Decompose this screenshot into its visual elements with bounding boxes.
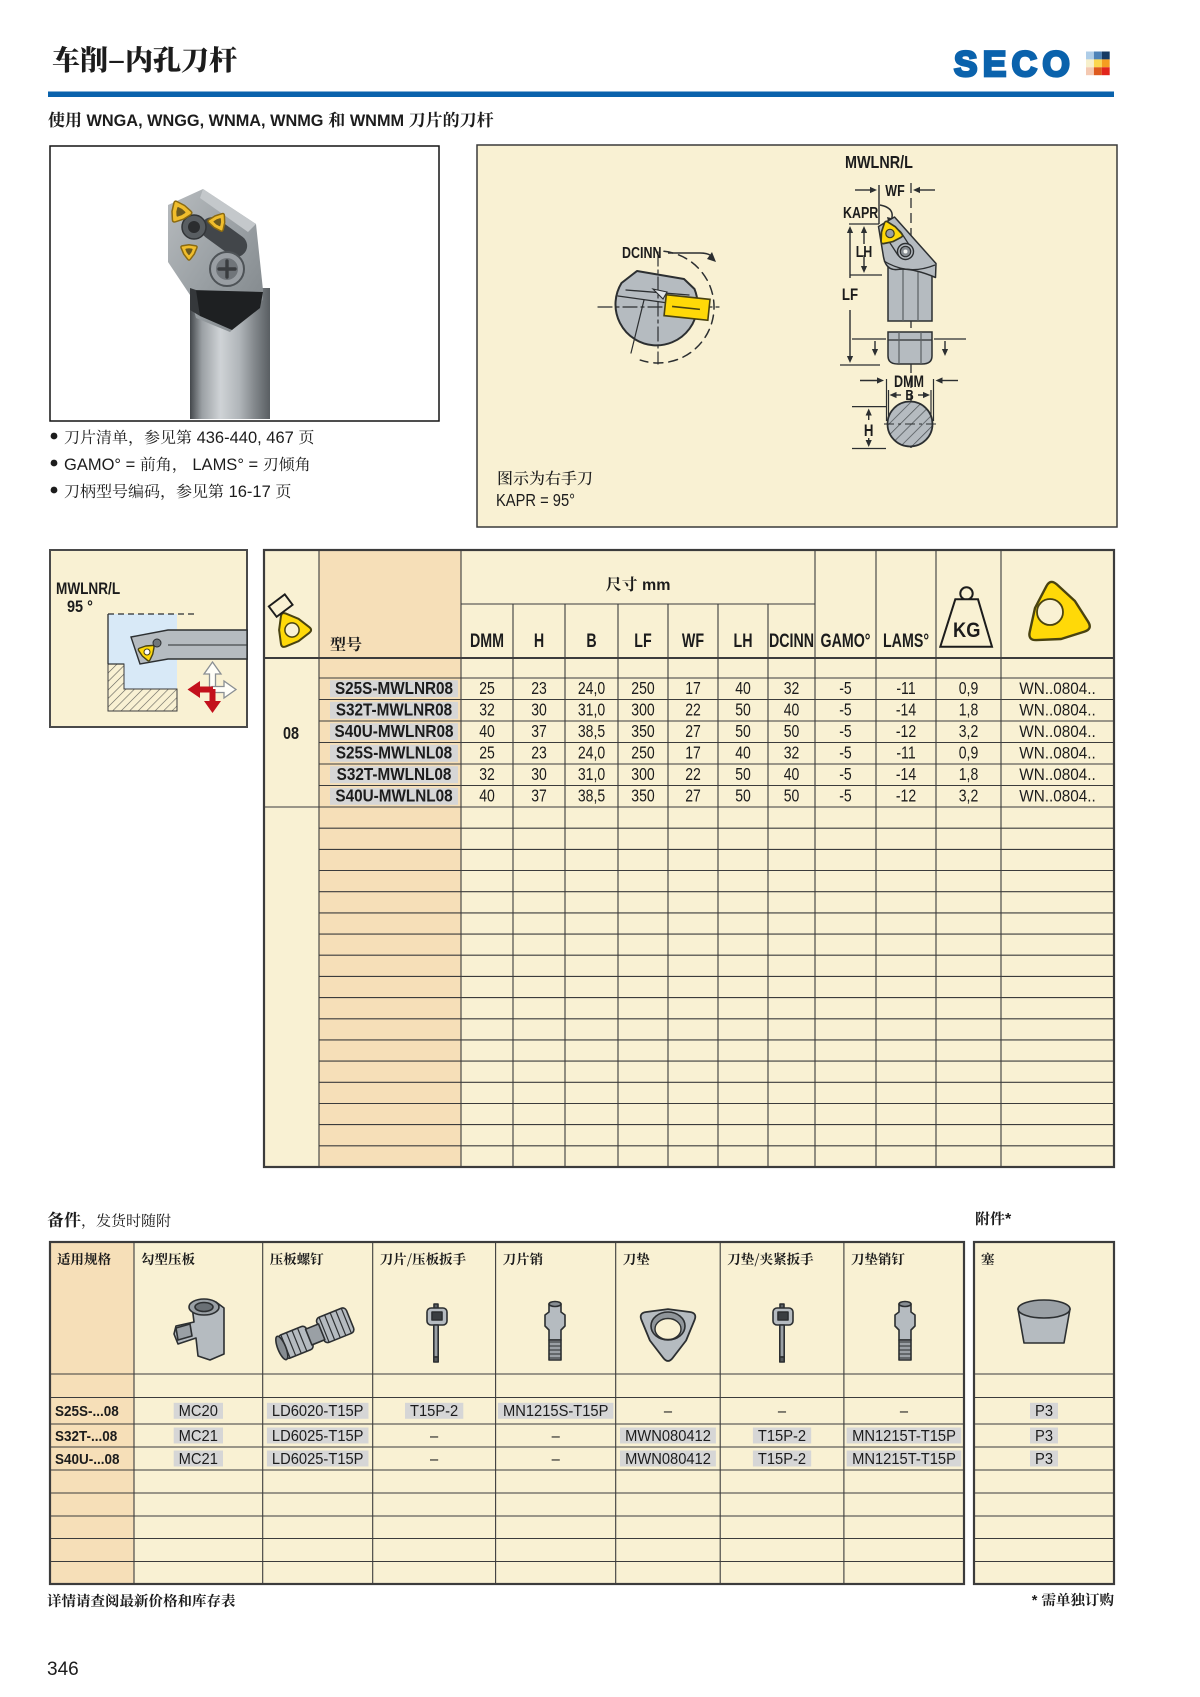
svg-text:-5: -5: [839, 721, 851, 741]
svg-text:KAPR = 95°: KAPR = 95°: [496, 491, 575, 510]
svg-text:300: 300: [631, 764, 654, 784]
svg-text:-5: -5: [839, 678, 851, 698]
svg-text:LD6020-T15P: LD6020-T15P: [272, 1403, 364, 1421]
svg-text:436-440, 467: 436-440, 467: [192, 429, 298, 447]
svg-text:350: 350: [631, 786, 654, 806]
svg-text:WF: WF: [885, 183, 905, 201]
svg-text:24,0: 24,0: [578, 678, 605, 698]
svg-text:S40U-MWLNL08: S40U-MWLNL08: [335, 785, 452, 805]
svg-text:*: *: [1032, 1593, 1042, 1609]
svg-text:95 °: 95 °: [67, 598, 93, 616]
svg-text:-14: -14: [896, 700, 916, 720]
svg-text:31,0: 31,0: [578, 764, 605, 784]
svg-text:S32T-...08: S32T-...08: [55, 1428, 117, 1445]
svg-text:346: 346: [47, 1659, 79, 1680]
svg-text:50: 50: [735, 721, 751, 741]
svg-text:MWN080412: MWN080412: [625, 1450, 711, 1468]
svg-text:17: 17: [685, 743, 701, 763]
svg-text:40: 40: [735, 678, 751, 698]
svg-text:-11: -11: [896, 678, 915, 698]
svg-text:1,8: 1,8: [959, 764, 979, 784]
svg-text:38,5: 38,5: [578, 721, 605, 741]
svg-text:B: B: [586, 630, 596, 651]
svg-text:350: 350: [631, 721, 654, 741]
svg-text:40: 40: [735, 743, 751, 763]
svg-text:KG: KG: [953, 619, 980, 642]
svg-text:WN..0804..: WN..0804..: [1019, 744, 1095, 763]
svg-text:30: 30: [531, 700, 547, 720]
svg-text:WNGA, WNGG, WNMA, WNMG: WNGA, WNGG, WNMA, WNMG: [82, 112, 328, 130]
svg-text:25: 25: [479, 743, 495, 763]
svg-text:38,5: 38,5: [578, 786, 605, 806]
svg-text:1,8: 1,8: [959, 700, 979, 720]
svg-text:MWLNR/L: MWLNR/L: [845, 153, 913, 173]
svg-text:MN1215T-T15P: MN1215T-T15P: [852, 1450, 956, 1468]
svg-text:S32T-MWLNR08: S32T-MWLNR08: [336, 699, 452, 719]
svg-text:32: 32: [479, 700, 495, 720]
svg-text:T15P-2: T15P-2: [758, 1450, 806, 1468]
svg-text:-5: -5: [839, 700, 851, 720]
svg-text:-5: -5: [839, 743, 851, 763]
svg-text:31,0: 31,0: [578, 700, 605, 720]
svg-text:-5: -5: [839, 764, 851, 784]
svg-text:WN..0804..: WN..0804..: [1019, 701, 1095, 720]
svg-text:P3: P3: [1035, 1450, 1053, 1468]
svg-text:250: 250: [631, 743, 654, 763]
svg-text:H: H: [534, 630, 544, 651]
svg-text:0,9: 0,9: [959, 678, 979, 698]
svg-text:3,2: 3,2: [959, 721, 979, 741]
svg-text:24,0: 24,0: [578, 743, 605, 763]
svg-text:S40U-MWLNR08: S40U-MWLNR08: [335, 721, 454, 741]
svg-text:MC21: MC21: [179, 1427, 218, 1445]
svg-text:27: 27: [685, 721, 701, 741]
svg-text:P3: P3: [1035, 1427, 1053, 1445]
svg-text:40: 40: [784, 700, 800, 720]
svg-text:S25S-MWLNR08: S25S-MWLNR08: [335, 678, 453, 698]
svg-text:MC21: MC21: [179, 1450, 218, 1468]
svg-text:–: –: [900, 1403, 909, 1421]
svg-text:T15P-2: T15P-2: [410, 1403, 458, 1421]
svg-text:50: 50: [735, 700, 751, 720]
svg-text:50: 50: [784, 721, 800, 741]
svg-text:-12: -12: [896, 721, 916, 741]
svg-text:KAPR: KAPR: [843, 205, 879, 223]
svg-text:37: 37: [531, 786, 547, 806]
svg-text:MC20: MC20: [179, 1403, 218, 1421]
svg-text:MWN080412: MWN080412: [625, 1427, 711, 1445]
svg-text:27: 27: [685, 786, 701, 806]
svg-text:DMM: DMM: [470, 630, 504, 651]
svg-text:S32T-MWLNL08: S32T-MWLNL08: [337, 764, 452, 784]
svg-text:50: 50: [735, 786, 751, 806]
svg-text:DCINN: DCINN: [622, 245, 661, 263]
svg-text:-11: -11: [896, 743, 915, 763]
svg-text:T15P-2: T15P-2: [758, 1427, 806, 1445]
svg-text:32: 32: [479, 764, 495, 784]
svg-text:LH: LH: [856, 244, 873, 262]
svg-text:–: –: [430, 1450, 439, 1468]
svg-text:WN..0804..: WN..0804..: [1019, 722, 1095, 741]
svg-text:23: 23: [531, 743, 547, 763]
svg-text:S40U-...08: S40U-...08: [55, 1451, 120, 1468]
svg-text:23: 23: [531, 678, 547, 698]
svg-text:LD6025-T15P: LD6025-T15P: [272, 1450, 364, 1468]
svg-text:S25S-...08: S25S-...08: [55, 1404, 119, 1421]
svg-text:mm: mm: [638, 577, 671, 594]
svg-text:22: 22: [685, 700, 701, 720]
svg-text:*: *: [1005, 1211, 1012, 1228]
svg-text:40: 40: [784, 764, 800, 784]
svg-text:32: 32: [784, 678, 800, 698]
svg-text:WNMM: WNMM: [345, 112, 408, 130]
svg-text:40: 40: [479, 721, 495, 741]
svg-text:LH: LH: [734, 630, 753, 651]
svg-text:16-17: 16-17: [224, 483, 275, 501]
svg-text:300: 300: [631, 700, 654, 720]
svg-text:LAMS°: LAMS°: [883, 630, 929, 651]
svg-text:0,9: 0,9: [959, 743, 979, 763]
svg-text:-14: -14: [896, 764, 916, 784]
svg-text:17: 17: [685, 678, 701, 698]
svg-text:LF: LF: [842, 286, 858, 305]
svg-text:-5: -5: [839, 786, 851, 806]
svg-text:08: 08: [283, 724, 299, 744]
svg-text:H: H: [864, 422, 874, 441]
svg-text:GAMO°: GAMO°: [821, 630, 871, 651]
svg-text:S25S-MWLNL08: S25S-MWLNL08: [336, 742, 452, 762]
svg-text:50: 50: [784, 786, 800, 806]
svg-text:P3: P3: [1035, 1403, 1053, 1421]
svg-text:–: –: [552, 1450, 561, 1468]
svg-text:LD6025-T15P: LD6025-T15P: [272, 1427, 364, 1445]
svg-text:–: –: [430, 1427, 439, 1445]
svg-text:3,2: 3,2: [959, 786, 979, 806]
svg-text:–: –: [552, 1427, 561, 1445]
svg-text:37: 37: [531, 721, 547, 741]
svg-text:WN..0804..: WN..0804..: [1019, 679, 1095, 698]
svg-text:–: –: [778, 1403, 787, 1421]
svg-text:25: 25: [479, 678, 495, 698]
svg-text:GAMO° =: GAMO° =: [64, 456, 140, 474]
svg-text:MN1215S-T15P: MN1215S-T15P: [503, 1403, 608, 1421]
svg-text:40: 40: [479, 786, 495, 806]
svg-text:250: 250: [631, 678, 654, 698]
svg-text:MN1215T-T15P: MN1215T-T15P: [852, 1427, 956, 1445]
svg-text:WN..0804..: WN..0804..: [1019, 765, 1095, 784]
svg-text:MWLNR/L: MWLNR/L: [56, 580, 120, 599]
svg-text:LAMS° =: LAMS° =: [188, 456, 263, 474]
svg-text:WF: WF: [682, 630, 704, 651]
svg-text:22: 22: [685, 764, 701, 784]
svg-text:SECO: SECO: [954, 45, 1075, 84]
svg-text:LF: LF: [634, 630, 651, 651]
svg-text:-12: -12: [896, 786, 916, 806]
svg-text:–: –: [664, 1403, 673, 1421]
svg-text:50: 50: [735, 764, 751, 784]
svg-text:WN..0804..: WN..0804..: [1019, 787, 1095, 806]
svg-text:DCINN: DCINN: [769, 630, 814, 651]
svg-text:30: 30: [531, 764, 547, 784]
svg-text:32: 32: [784, 743, 800, 763]
